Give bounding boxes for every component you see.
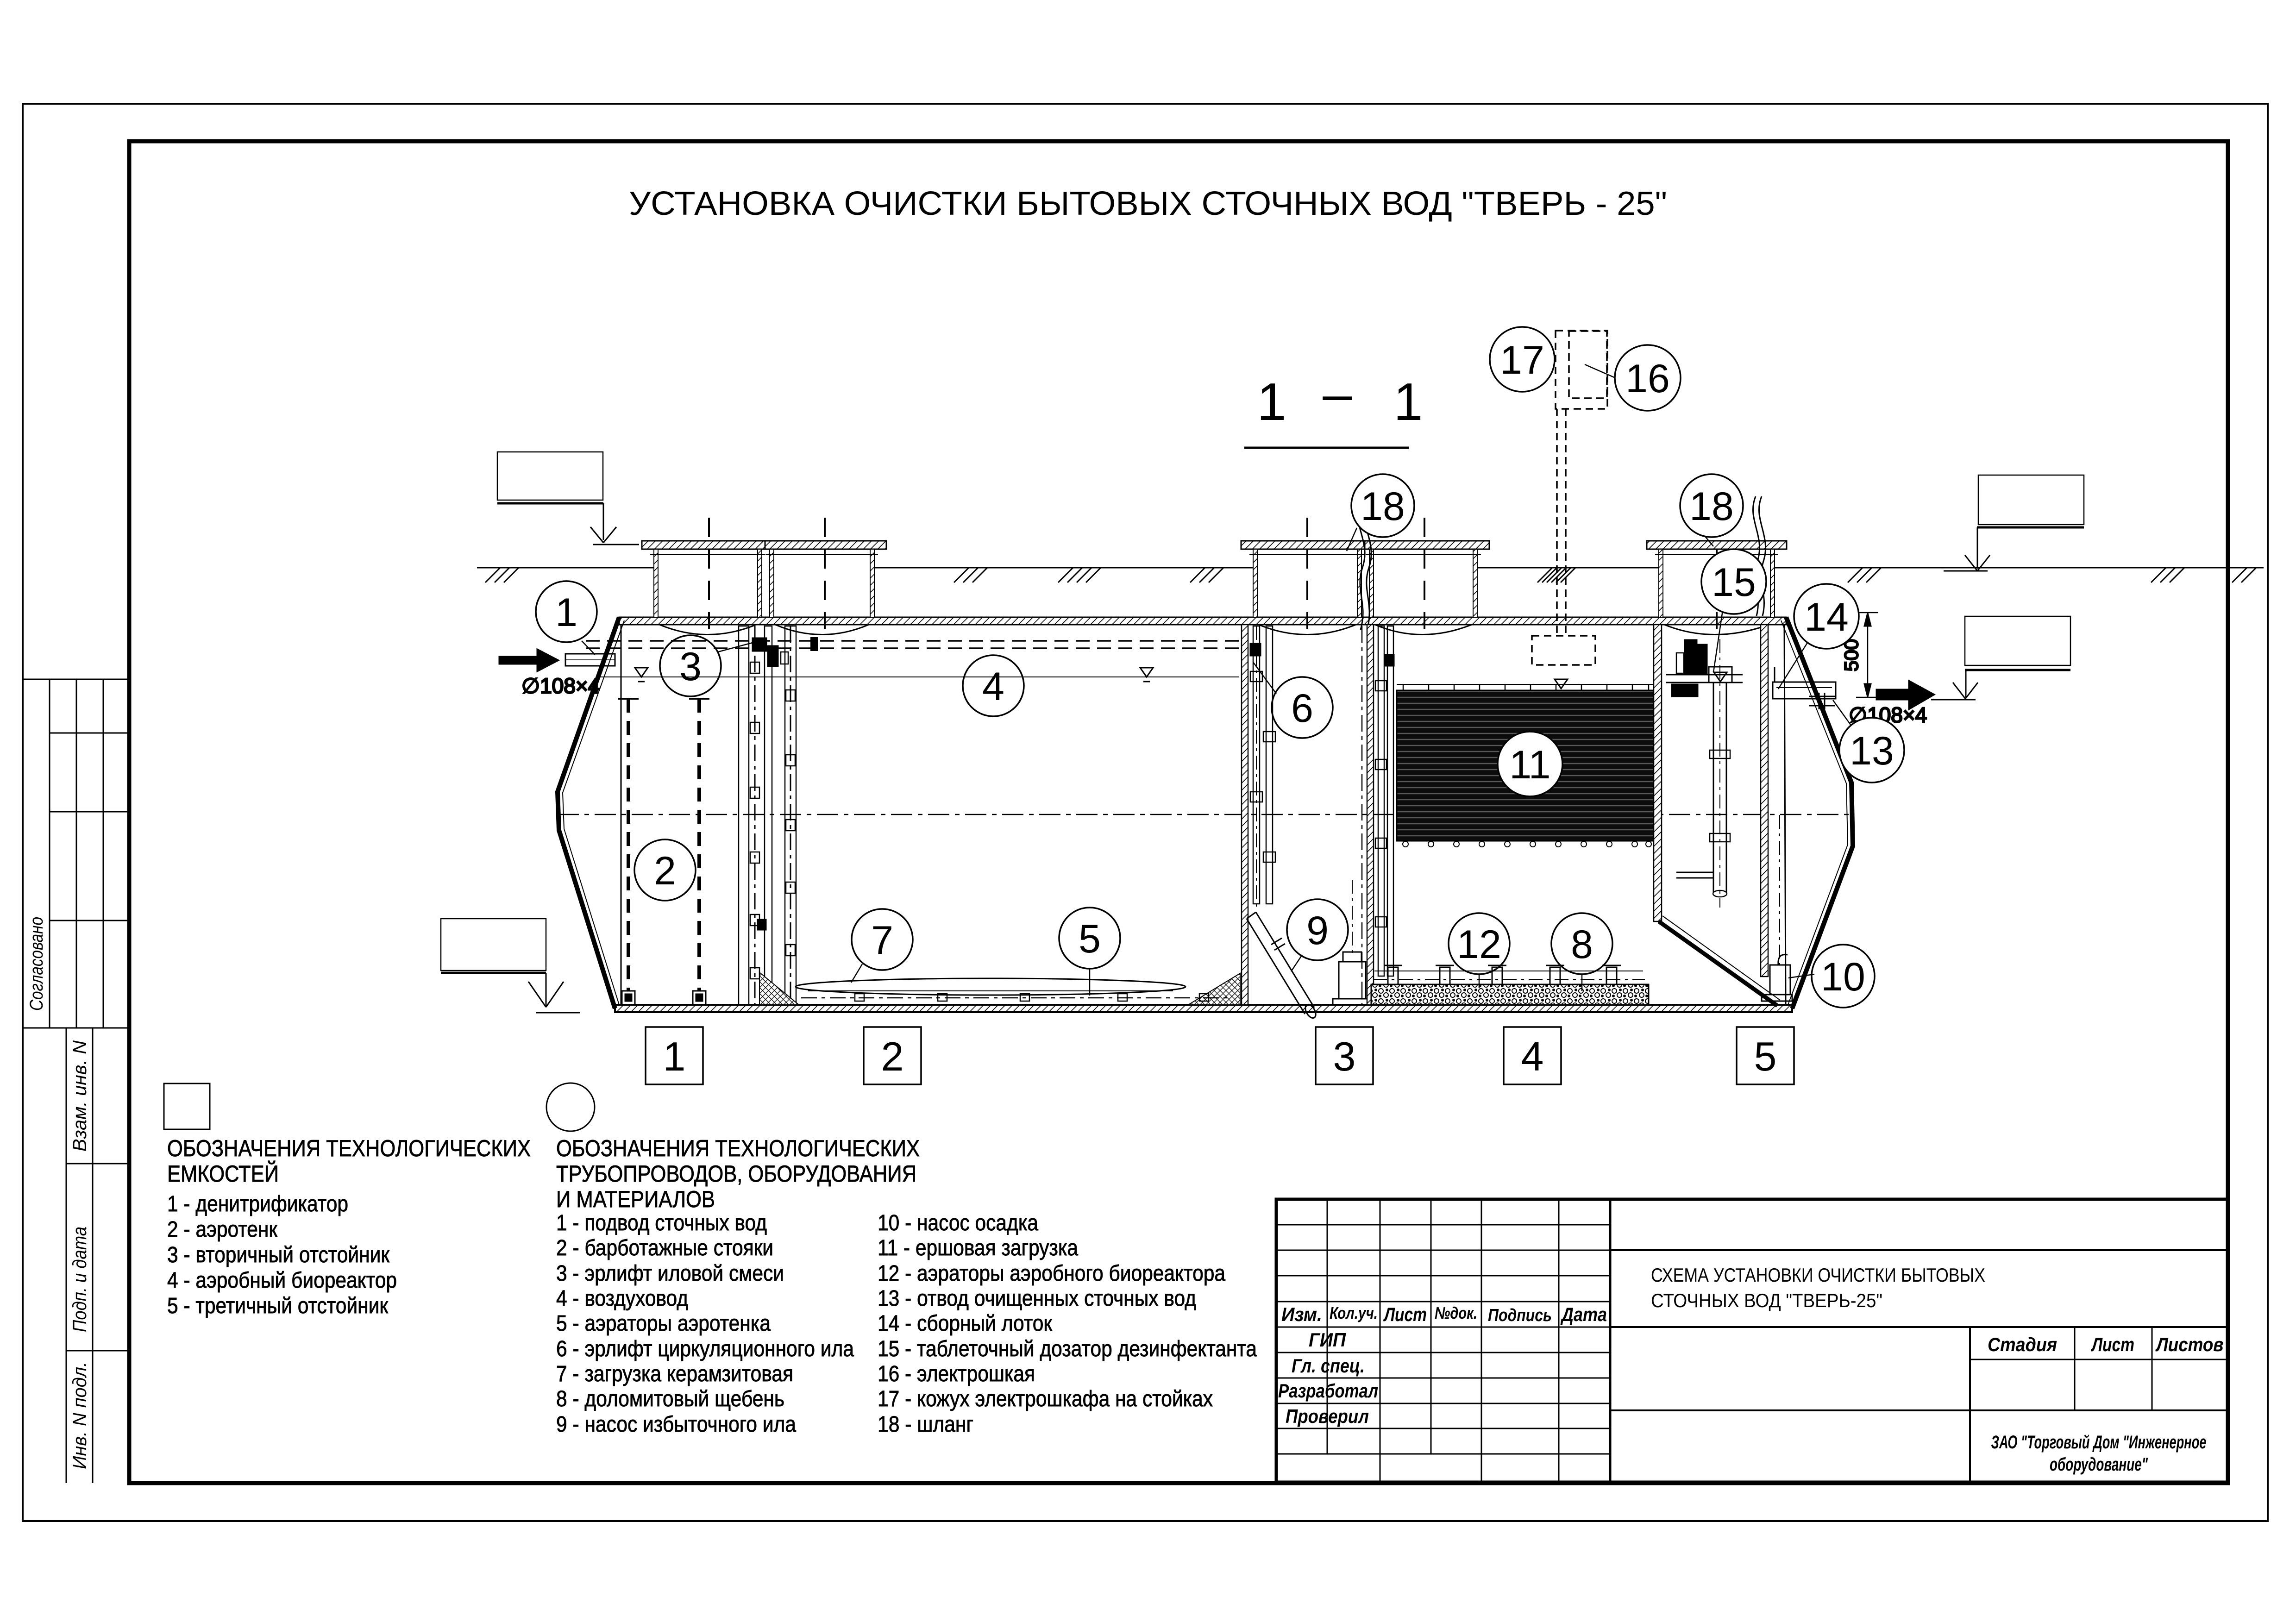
svg-text:∅108×4: ∅108×4 bbox=[521, 674, 600, 698]
svg-text:6 - эрлифт циркуляционного ила: 6 - эрлифт циркуляционного ила bbox=[556, 1337, 854, 1361]
svg-text:СХЕМА УСТАНОВКИ ОЧИСТКИ БЫТОВЫ: СХЕМА УСТАНОВКИ ОЧИСТКИ БЫТОВЫХ bbox=[1651, 1264, 1985, 1286]
svg-text:4 - аэробный биореактор: 4 - аэробный биореактор bbox=[167, 1268, 397, 1293]
svg-text:ЕМКОСТЕЙ: ЕМКОСТЕЙ bbox=[167, 1160, 279, 1187]
svg-text:17: 17 bbox=[1500, 338, 1544, 382]
svg-text:Дата: Дата bbox=[1560, 1303, 1607, 1325]
svg-text:ОБОЗНАЧЕНИЯ ТЕХНОЛОГИЧЕСКИХ: ОБОЗНАЧЕНИЯ ТЕХНОЛОГИЧЕСКИХ bbox=[167, 1135, 531, 1161]
svg-text:ЗАО "Торговый Дом "Инженерное: ЗАО "Торговый Дом "Инженерное bbox=[1991, 1432, 2207, 1453]
svg-text:11 - ершовая загрузка: 11 - ершовая загрузка bbox=[878, 1236, 1078, 1260]
svg-text:14 - сборный лоток: 14 - сборный лоток bbox=[878, 1311, 1053, 1336]
svg-text:ОБОЗНАЧЕНИЯ ТЕХНОЛОГИЧЕСКИХ: ОБОЗНАЧЕНИЯ ТЕХНОЛОГИЧЕСКИХ bbox=[556, 1135, 920, 1161]
svg-text:18 - шланг: 18 - шланг bbox=[878, 1412, 973, 1437]
svg-text:5 - аэраторы аэротенка: 5 - аэраторы аэротенка bbox=[556, 1311, 771, 1336]
svg-text:5: 5 bbox=[1754, 1033, 1777, 1079]
svg-text:Изм.: Изм. bbox=[1281, 1303, 1322, 1325]
svg-text:Стадия: Стадия bbox=[1988, 1334, 2057, 1355]
svg-text:4: 4 bbox=[1521, 1033, 1544, 1079]
svg-text:5: 5 bbox=[1079, 917, 1101, 961]
svg-text:16: 16 bbox=[1625, 357, 1670, 401]
svg-text:18: 18 bbox=[1361, 484, 1405, 529]
svg-text:8: 8 bbox=[1571, 922, 1593, 967]
svg-text:И МАТЕРИАЛОВ: И МАТЕРИАЛОВ bbox=[556, 1186, 715, 1212]
svg-text:15 - таблеточный дозатор дезин: 15 - таблеточный дозатор дезинфектанта bbox=[878, 1337, 1257, 1361]
svg-text:13: 13 bbox=[1850, 729, 1894, 773]
svg-text:5 - третичный отстойник: 5 - третичный отстойник bbox=[167, 1294, 389, 1318]
svg-text:9: 9 bbox=[1306, 908, 1329, 953]
svg-text:4 - воздуховод: 4 - воздуховод bbox=[556, 1286, 688, 1311]
svg-text:–: – bbox=[1323, 364, 1352, 423]
svg-text:3: 3 bbox=[1333, 1033, 1356, 1079]
svg-text:Лист: Лист bbox=[1383, 1303, 1427, 1325]
svg-text:12 - аэраторы аэробного биореа: 12 - аэраторы аэробного биореактора bbox=[878, 1261, 1225, 1286]
svg-text:1: 1 bbox=[663, 1033, 686, 1079]
svg-text:17 - кожух электрошкафа на сто: 17 - кожух электрошкафа на стойках bbox=[878, 1387, 1213, 1411]
svg-text:Взам. инв. N: Взам. инв. N bbox=[69, 1040, 90, 1152]
svg-text:Инв. N подл.: Инв. N подл. bbox=[69, 1362, 90, 1469]
svg-text:8 - доломитовый щебень: 8 - доломитовый щебень bbox=[556, 1387, 784, 1411]
svg-text:7 - загрузка керамзитовая: 7 - загрузка керамзитовая bbox=[556, 1362, 793, 1386]
svg-text:Подп. и дата: Подп. и дата bbox=[69, 1227, 90, 1332]
svg-text:7: 7 bbox=[871, 918, 893, 963]
svg-text:15: 15 bbox=[1712, 560, 1756, 605]
svg-text:2: 2 bbox=[654, 849, 676, 893]
svg-text:1: 1 bbox=[1257, 373, 1286, 432]
svg-text:ГИП: ГИП bbox=[1309, 1329, 1346, 1351]
svg-text:9 - насос избыточного ила: 9 - насос избыточного ила bbox=[556, 1412, 796, 1437]
svg-text:3 - эрлифт иловой смеси: 3 - эрлифт иловой смеси bbox=[556, 1261, 784, 1286]
svg-text:1: 1 bbox=[555, 590, 577, 635]
svg-text:Кол.уч.: Кол.уч. bbox=[1330, 1303, 1378, 1322]
svg-text:4: 4 bbox=[982, 664, 1004, 709]
svg-text:3: 3 bbox=[679, 645, 702, 689]
svg-text:Согласовано: Согласовано bbox=[26, 917, 47, 1011]
svg-text:Проверил: Проверил bbox=[1286, 1405, 1369, 1427]
svg-text:10 - насос осадка: 10 - насос осадка bbox=[878, 1211, 1038, 1235]
svg-text:6: 6 bbox=[1291, 686, 1313, 731]
svg-text:18: 18 bbox=[1689, 484, 1734, 529]
svg-text:Гл. спец.: Гл. спец. bbox=[1292, 1355, 1365, 1377]
svg-text:Подпись: Подпись bbox=[1488, 1306, 1552, 1325]
svg-text:1 - денитрификатор: 1 - денитрификатор bbox=[167, 1192, 348, 1216]
svg-text:12: 12 bbox=[1457, 922, 1501, 967]
svg-text:13 - отвод очищенных сточных в: 13 - отвод очищенных сточных вод bbox=[878, 1286, 1196, 1311]
svg-text:2 - аэротенк: 2 - аэротенк bbox=[167, 1217, 278, 1242]
svg-text:1: 1 bbox=[1393, 373, 1423, 432]
svg-text:1 - подвод сточных вод: 1 - подвод сточных вод bbox=[556, 1211, 767, 1235]
svg-text:16 - электрошкая: 16 - электрошкая bbox=[878, 1362, 1035, 1386]
svg-text:11: 11 bbox=[1509, 743, 1550, 787]
svg-text:СТОЧНЫХ ВОД "ТВЕРЬ-25": СТОЧНЫХ ВОД "ТВЕРЬ-25" bbox=[1651, 1290, 1882, 1311]
svg-text:2 - барботажные стояки: 2 - барботажные стояки bbox=[556, 1236, 773, 1260]
svg-text:УСТАНОВКА ОЧИСТКИ БЫТОВЫХ СТОЧ: УСТАНОВКА ОЧИСТКИ БЫТОВЫХ СТОЧНЫХ ВОД "Т… bbox=[629, 185, 1667, 222]
svg-text:3 - вторичный отстойник: 3 - вторичный отстойник bbox=[167, 1243, 390, 1267]
svg-text:2: 2 bbox=[881, 1033, 904, 1079]
svg-text:10: 10 bbox=[1821, 955, 1865, 999]
svg-text:14: 14 bbox=[1804, 595, 1849, 639]
svg-text:ТРУБОПРОВОДОВ, ОБОРУДОВАНИЯ: ТРУБОПРОВОДОВ, ОБОРУДОВАНИЯ bbox=[556, 1161, 916, 1187]
svg-text:Листов: Листов bbox=[2155, 1334, 2224, 1355]
svg-text:Разработал: Разработал bbox=[1278, 1380, 1378, 1402]
svg-text:Лист: Лист bbox=[2091, 1334, 2134, 1355]
svg-text:оборудование": оборудование" bbox=[2050, 1454, 2148, 1475]
svg-text:№док.: №док. bbox=[1435, 1303, 1477, 1322]
